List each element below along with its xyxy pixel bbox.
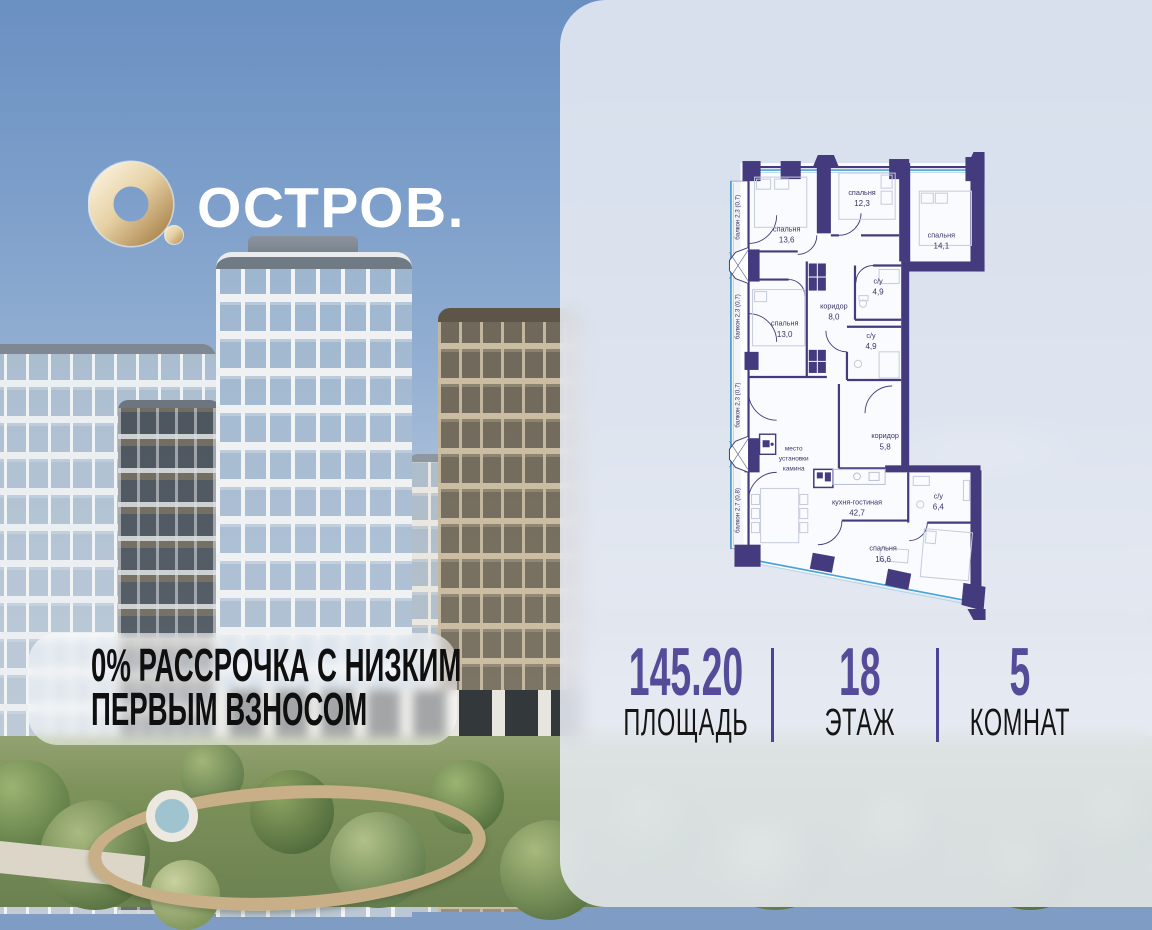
stat-area: 145.20 ПЛОЩАДЬ xyxy=(596,646,776,738)
svg-text:спальня: спальня xyxy=(771,319,798,328)
balcony-label: балкон 2,3 (0,7) xyxy=(734,195,741,240)
svg-text:12,3: 12,3 xyxy=(854,199,870,208)
svg-text:с/у: с/у xyxy=(934,491,944,500)
svg-text:балкон 2,7 (0,8): балкон 2,7 (0,8) xyxy=(734,488,741,533)
svg-text:4,9: 4,9 xyxy=(865,342,877,351)
fireplace-symbol xyxy=(760,434,776,454)
svg-text:42,7: 42,7 xyxy=(849,509,865,518)
svg-text:установки: установки xyxy=(779,455,809,462)
stat-rooms: 5 КОМНАТ xyxy=(950,646,1090,738)
brand-name: ОСТРОВ. xyxy=(197,178,465,238)
promo-line-2: ПЕРВЫМ ВЗНОСОМ xyxy=(91,687,367,731)
svg-text:кухня-гостиная: кухня-гостиная xyxy=(832,498,882,507)
stat-rooms-label: КОМНАТ xyxy=(970,708,1070,738)
playground-slide xyxy=(146,790,198,842)
svg-text:коридор: коридор xyxy=(820,302,848,311)
svg-text:камина: камина xyxy=(783,465,805,472)
svg-text:14,1: 14,1 xyxy=(934,241,950,250)
svg-text:8,0: 8,0 xyxy=(828,313,840,322)
promo-line-1: 0% РАССРОЧКА С НИЗКИМ xyxy=(91,643,461,687)
svg-text:16,6: 16,6 xyxy=(875,555,891,564)
svg-text:спальня: спальня xyxy=(848,188,875,197)
room-name: спальня xyxy=(773,224,800,233)
stat-divider xyxy=(771,648,774,742)
stat-floor-label: ЭТАЖ xyxy=(825,708,895,738)
stat-area-label: ПЛОЩАДЬ xyxy=(623,708,748,738)
svg-text:балкон 2,3 (0,7): балкон 2,3 (0,7) xyxy=(734,383,741,428)
fireplace-note: место xyxy=(785,445,803,452)
svg-text:5,8: 5,8 xyxy=(880,442,892,451)
svg-text:с/у: с/у xyxy=(866,331,876,340)
stat-rooms-value: 5 xyxy=(1010,646,1031,698)
svg-text:спальня: спальня xyxy=(869,544,896,553)
svg-text:балкон 2,3 (0,7): балкон 2,3 (0,7) xyxy=(734,294,741,339)
floor-plan: спальня 13,6 спальня 12,3 спальня 14,1 с… xyxy=(726,151,990,620)
room-area: 13,6 xyxy=(779,235,795,244)
stat-area-value: 145.20 xyxy=(629,646,743,698)
stat-floor: 18 ЭТАЖ xyxy=(790,646,930,738)
svg-text:коридор: коридор xyxy=(871,431,899,440)
stat-divider xyxy=(936,648,939,742)
promo-banner: 0% РАССРОЧКА С НИЗКИМ ПЕРВЫМ ВЗНОСОМ xyxy=(28,633,457,745)
svg-text:13,0: 13,0 xyxy=(777,330,793,339)
svg-text:4,9: 4,9 xyxy=(873,288,885,297)
svg-text:спальня: спальня xyxy=(928,230,955,239)
stat-floor-value: 18 xyxy=(839,646,881,698)
svg-text:с/у: с/у xyxy=(873,277,883,286)
logo-torus-icon xyxy=(88,160,190,254)
svg-text:6,4: 6,4 xyxy=(933,503,945,512)
